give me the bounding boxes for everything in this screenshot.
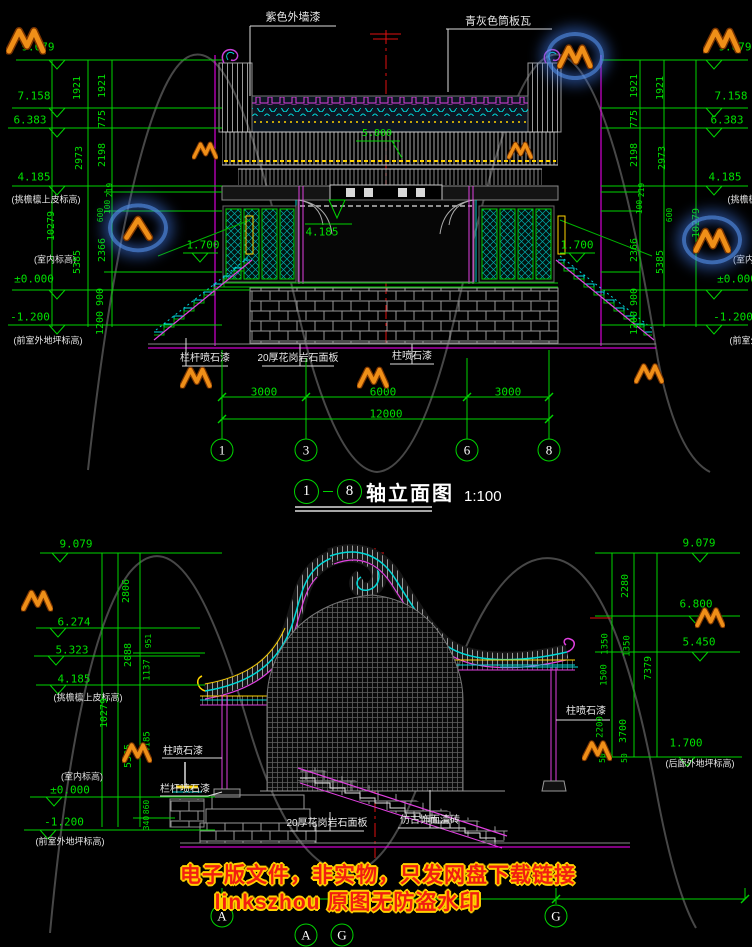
level-ridge-48: 5.800 <box>362 129 392 139</box>
piracy-notice-line1: 电子版文件，非实物，只发网盘下载链接 <box>180 859 576 889</box>
dim-bot-right-80: 2280 <box>621 574 631 598</box>
dim-top-left-13: 5385 <box>73 250 83 274</box>
title-axis-from-bubble: 1 <box>294 479 319 504</box>
level-top-left-m1200-9: -1.200 <box>10 312 50 323</box>
watermark-m-logo-6 <box>682 215 742 264</box>
axis-bubble-6: 6 <box>456 439 479 462</box>
level-bot-left-6274-58: 6.274 <box>57 617 90 628</box>
note-bot-left-indoor-62: (室内标高) <box>61 773 103 782</box>
title-underline <box>295 507 432 511</box>
dim-bot-right-81: 1350 <box>602 633 611 655</box>
watermark-m-logo-8 <box>357 365 389 388</box>
dim-top-left-19: 100 <box>104 200 112 214</box>
dim-top-left-23: 1200 <box>96 311 106 335</box>
level-top-right-0000-30: ±0.000 <box>717 274 752 285</box>
dim-top-left-15: 1921 <box>98 74 108 98</box>
note-bot-left-eave-61: (挑檐檩上皮标高) <box>54 694 123 703</box>
label-grey-tube-tile-1: 青灰色筒板瓦 <box>465 17 531 28</box>
axis-bubble-A-2: A <box>295 924 318 947</box>
dim-top-right-40: 1200 <box>630 311 640 335</box>
label-antique-brick-92: 仿古饰面清砖 <box>400 816 460 826</box>
dim-bot-right-86: 3700 <box>619 719 629 743</box>
title-axis-to-bubble: 8 <box>337 479 362 504</box>
dim-top-left-16: 775 <box>98 110 108 128</box>
axis-bubble-8: 8 <box>538 439 561 462</box>
level-bot-left-9079-57: 9.079 <box>59 539 92 550</box>
dim-top-right-42: 2973 <box>658 146 668 170</box>
level-top-left-6383-4: 6.383 <box>13 115 46 126</box>
level-top-right-7158-25: 7.158 <box>714 91 747 102</box>
title-text: 轴立面图 <box>366 477 454 506</box>
watermark-m-logo-3 <box>192 141 218 160</box>
note-top-right-eave-28: (挑檐檩上皮标高) <box>728 196 752 205</box>
dim-bot-right-82: 1350 <box>624 635 633 657</box>
watermark-m-logo-11 <box>122 741 152 763</box>
level-top-left-7158-3: 7.158 <box>17 91 50 102</box>
level-stair-left-46: 1.700 <box>186 240 219 251</box>
level-beam-49: 4.185 <box>305 227 338 238</box>
dim-top-left-11: 1921 <box>73 76 83 100</box>
level-top-right-4185-27: 4.185 <box>708 172 741 183</box>
dim-top-left-17: 2198 <box>98 143 108 167</box>
level-bot-right-1700-78: 1.700 <box>669 738 702 749</box>
section-drawing <box>160 548 630 858</box>
note-top-left-eave-6: (挑檐檩上皮标高) <box>12 196 81 205</box>
dim-bot-right-total-84: 7379 <box>644 656 654 680</box>
dim-top-left-22: 900 <box>96 288 106 306</box>
note-bot-left-ground-65: (前室外地坪标高) <box>36 838 105 847</box>
drawing-title: 1 8 轴立面图 1:100 <box>294 477 502 506</box>
label-railing-paint-bot-90: 栏杆喷石漆 <box>160 785 210 795</box>
watermark-m-logo-9 <box>634 362 664 384</box>
dim-top-left-total-14: 10279 <box>47 211 57 241</box>
dim-top-right-43: 600 <box>666 208 674 222</box>
cad-linework <box>0 0 752 933</box>
level-bot-right-5450-77: 5.450 <box>682 637 715 648</box>
cad-canvas: 紫色外墙漆青灰色筒板瓦9.0797.1586.3834.185(挑檐檩上皮标高)… <box>0 0 752 933</box>
dim-top-right-44: 5385 <box>656 250 666 274</box>
level-stair-right-47: 1.700 <box>560 240 593 251</box>
dim-bot-right-85: 2200 <box>597 716 606 738</box>
dim-bot-left-74: 340 <box>143 816 151 830</box>
label-column-paint-bot-left-89: 柱喷石漆 <box>163 747 203 757</box>
label-railing-paint-top-50: 栏杆喷石漆 <box>180 354 230 364</box>
title-dash <box>323 491 333 492</box>
watermark-m-logo-12 <box>582 739 612 761</box>
label-column-paint-bot-right-93: 柱喷石漆 <box>566 707 606 717</box>
dim-top-right-37: 100 <box>636 200 644 214</box>
watermark-m-logo-2 <box>703 26 741 53</box>
dim-top-left-18: 219 <box>106 183 114 197</box>
axis-bubble-G-3: G <box>331 924 354 947</box>
dim-bot-left-69: 1137 <box>144 659 153 681</box>
dim-bot-left-68: 951 <box>145 634 153 648</box>
watermark-m-logo-7 <box>180 365 212 388</box>
dim-top-right-36: 219 <box>638 183 646 197</box>
level-top-left-4185-5: 4.185 <box>17 172 50 183</box>
dim-top-right-33: 1921 <box>630 74 640 98</box>
label-purple-wall-paint-0: 紫色外墙漆 <box>266 13 321 24</box>
dim-top-right-38: 2366 <box>630 238 640 262</box>
dim-top-left-20: 600 <box>97 208 105 222</box>
dim-top-right-35: 2198 <box>630 143 640 167</box>
note-top-right-ground-32: (前室外地坪标高) <box>730 337 752 346</box>
watermark-m-logo-13 <box>695 606 725 628</box>
watermark-m-logo-5 <box>108 203 168 252</box>
level-bot-left-5323-59: 5.323 <box>55 645 88 656</box>
level-top-right-m1200-31: -1.200 <box>713 312 752 323</box>
level-top-right-6383-26: 6.383 <box>710 115 743 126</box>
note-top-left-indoor-7: (室内标高) <box>34 256 76 265</box>
dim-top-left-21: 2366 <box>98 238 108 262</box>
dim-bot-left-total-70: 10279 <box>100 698 110 728</box>
dim-span-53: 3000 <box>251 387 278 398</box>
dim-top-right-34: 775 <box>630 110 640 128</box>
watermark-m-logo-0 <box>6 26 46 55</box>
axis-bubble-3: 3 <box>295 439 318 462</box>
dim-top-right-39: 900 <box>630 288 640 306</box>
title-scale: 1:100 <box>464 488 502 505</box>
note-top-left-ground-10: (前室外地坪标高) <box>14 337 83 346</box>
dim-bot-left-67: 2088 <box>124 643 134 667</box>
axis-bubble-1: 1 <box>211 439 234 462</box>
level-bot-right-9079-75: 9.079 <box>682 538 715 549</box>
label-column-paint-top-52: 柱喷石漆 <box>392 352 432 362</box>
watermark-m-logo-10 <box>21 588 53 611</box>
dim-bot-right-88: 50 <box>621 753 629 763</box>
dim-bot-right-83: 1500 <box>601 664 610 686</box>
dim-bot-left-73: 860 <box>143 800 151 814</box>
level-top-left-0000-8: ±0.000 <box>14 274 54 285</box>
note-bot-right-ground-79: (后廊外地坪标高) <box>666 760 735 769</box>
note-top-right-indoor-29: (室内标高) <box>733 256 752 265</box>
level-bot-left-4185-60: 4.185 <box>57 674 90 685</box>
level-bot-left-0000-63: ±0.000 <box>50 785 90 796</box>
piracy-notice-line2: linkszhou 原图无防盗水印 <box>215 886 482 916</box>
dim-top-right-41: 1921 <box>656 76 666 100</box>
axis-bubble-G-1: G <box>545 905 568 928</box>
watermark-m-logo-4 <box>507 141 533 160</box>
dim-top-left-12: 2973 <box>75 146 85 170</box>
dim-span-55: 3000 <box>495 387 522 398</box>
dim-span-total-56: 12000 <box>369 409 402 420</box>
label-granite-panel-bot-91: 20厚花岗岩石面板 <box>286 819 367 829</box>
watermark-m-logo-1 <box>546 32 604 80</box>
level-bot-left-m1200-64: -1.200 <box>44 817 84 828</box>
label-granite-panel-top-51: 20厚花岗岩石面板 <box>257 354 338 364</box>
dim-bot-left-66: 2806 <box>122 579 132 603</box>
